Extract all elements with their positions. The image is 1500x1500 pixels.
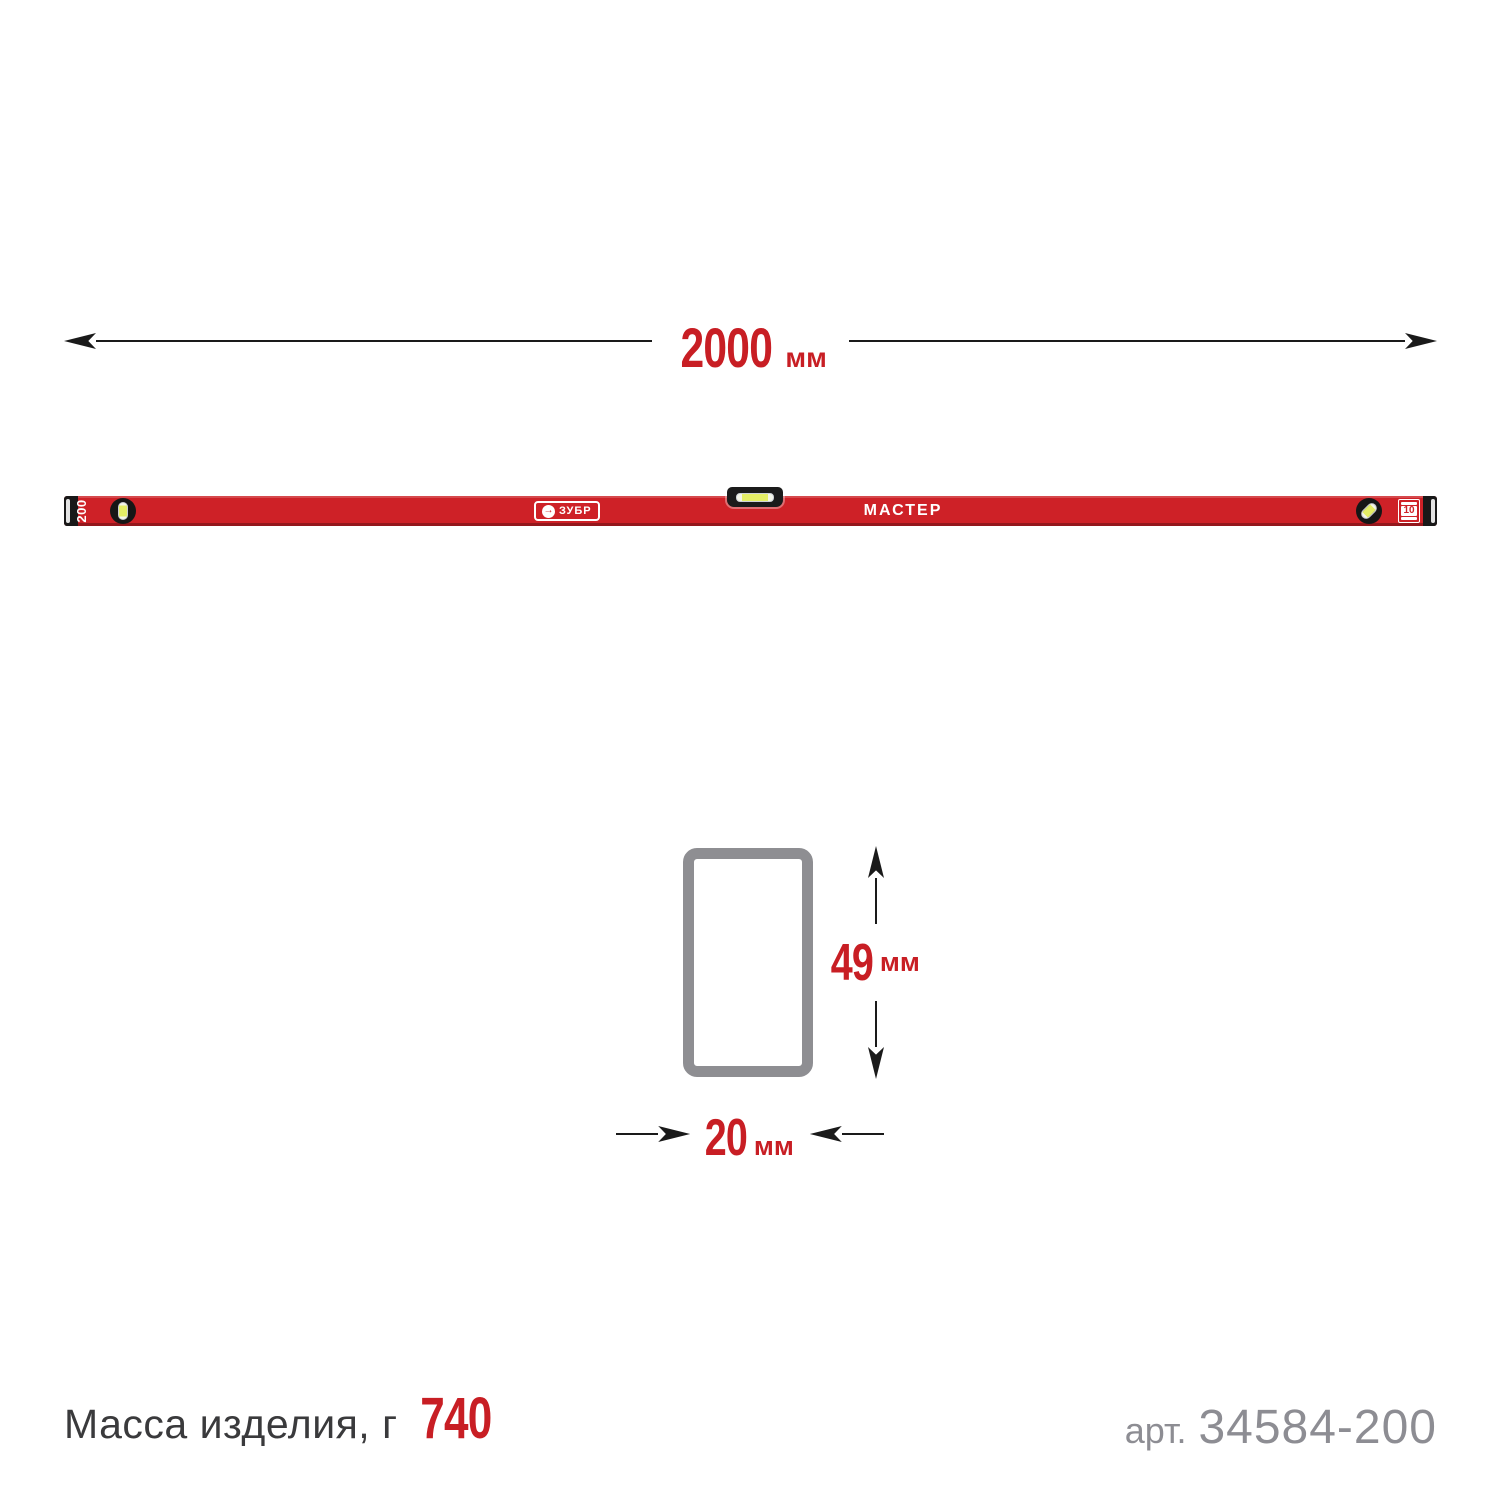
height-dimension: 49 мм bbox=[828, 846, 924, 1079]
badge-value: 10 bbox=[1401, 506, 1417, 516]
length-dimension-label: 2000 мм bbox=[652, 320, 849, 376]
sku-info: арт. 34584-200 bbox=[1125, 1400, 1437, 1455]
spirit-level: 200 → ЗУБР МАСТЕР 10 bbox=[64, 496, 1437, 526]
mass-info: Масса изделия, г 740 bbox=[64, 1390, 493, 1448]
dimension-line bbox=[875, 1001, 877, 1047]
length-dimension: 2000 мм bbox=[64, 318, 1437, 364]
sku-value: 34584-200 bbox=[1198, 1400, 1437, 1455]
sku-label: арт. bbox=[1125, 1410, 1187, 1452]
product-dimension-diagram: 2000 мм 200 → ЗУБР МАСТЕР 10 bbox=[0, 0, 1500, 1500]
cross-section-outline bbox=[683, 848, 813, 1077]
length-unit: мм bbox=[785, 342, 826, 374]
vial-bubble-icon bbox=[1359, 501, 1379, 521]
width-dimension-label: 20 мм bbox=[690, 1112, 810, 1164]
level-vial-center bbox=[727, 487, 783, 507]
width-dimension: 20 мм bbox=[616, 1108, 884, 1160]
brand-name: ЗУБР bbox=[559, 506, 592, 517]
length-value: 2000 bbox=[680, 320, 772, 376]
height-unit: мм bbox=[880, 947, 920, 978]
dimension-arrow-up bbox=[868, 846, 884, 924]
dimension-line bbox=[849, 340, 1405, 342]
mass-value: 740 bbox=[420, 1390, 491, 1448]
level-vial-left bbox=[110, 498, 136, 524]
dimension-line bbox=[875, 878, 877, 924]
zubr-arrow-icon: → bbox=[542, 505, 555, 518]
vial-bubble-icon bbox=[118, 502, 128, 520]
height-dimension-label: 49 мм bbox=[832, 924, 920, 1001]
level-end-cap-right bbox=[1423, 496, 1437, 526]
badge-bar bbox=[1401, 517, 1417, 520]
dimension-line bbox=[616, 1133, 658, 1135]
series-name: МАСТЕР bbox=[864, 503, 943, 519]
width-value: 20 bbox=[705, 1112, 747, 1164]
arrowhead-left-icon bbox=[64, 333, 96, 349]
arrowhead-up-icon bbox=[868, 846, 884, 878]
dimension-line bbox=[96, 340, 652, 342]
width-unit: мм bbox=[754, 1131, 794, 1162]
height-value: 49 bbox=[831, 937, 873, 989]
warranty-badge: 10 bbox=[1398, 499, 1420, 523]
end-cap-stripe bbox=[66, 499, 70, 523]
vial-bubble-icon bbox=[736, 493, 774, 502]
end-cap-stripe bbox=[1431, 499, 1435, 523]
arrowhead-right-icon bbox=[1405, 333, 1437, 349]
zubr-logo: → ЗУБР bbox=[534, 501, 600, 521]
dimension-arrow-down bbox=[868, 1001, 884, 1079]
arrowhead-down-icon bbox=[868, 1047, 884, 1079]
level-size-label: 200 bbox=[75, 499, 88, 522]
arrowhead-right-icon bbox=[658, 1126, 690, 1142]
mass-label: Масса изделия, г bbox=[64, 1401, 398, 1448]
level-vial-right bbox=[1356, 498, 1382, 524]
arrowhead-left-icon bbox=[810, 1126, 842, 1142]
dimension-line bbox=[842, 1133, 884, 1135]
